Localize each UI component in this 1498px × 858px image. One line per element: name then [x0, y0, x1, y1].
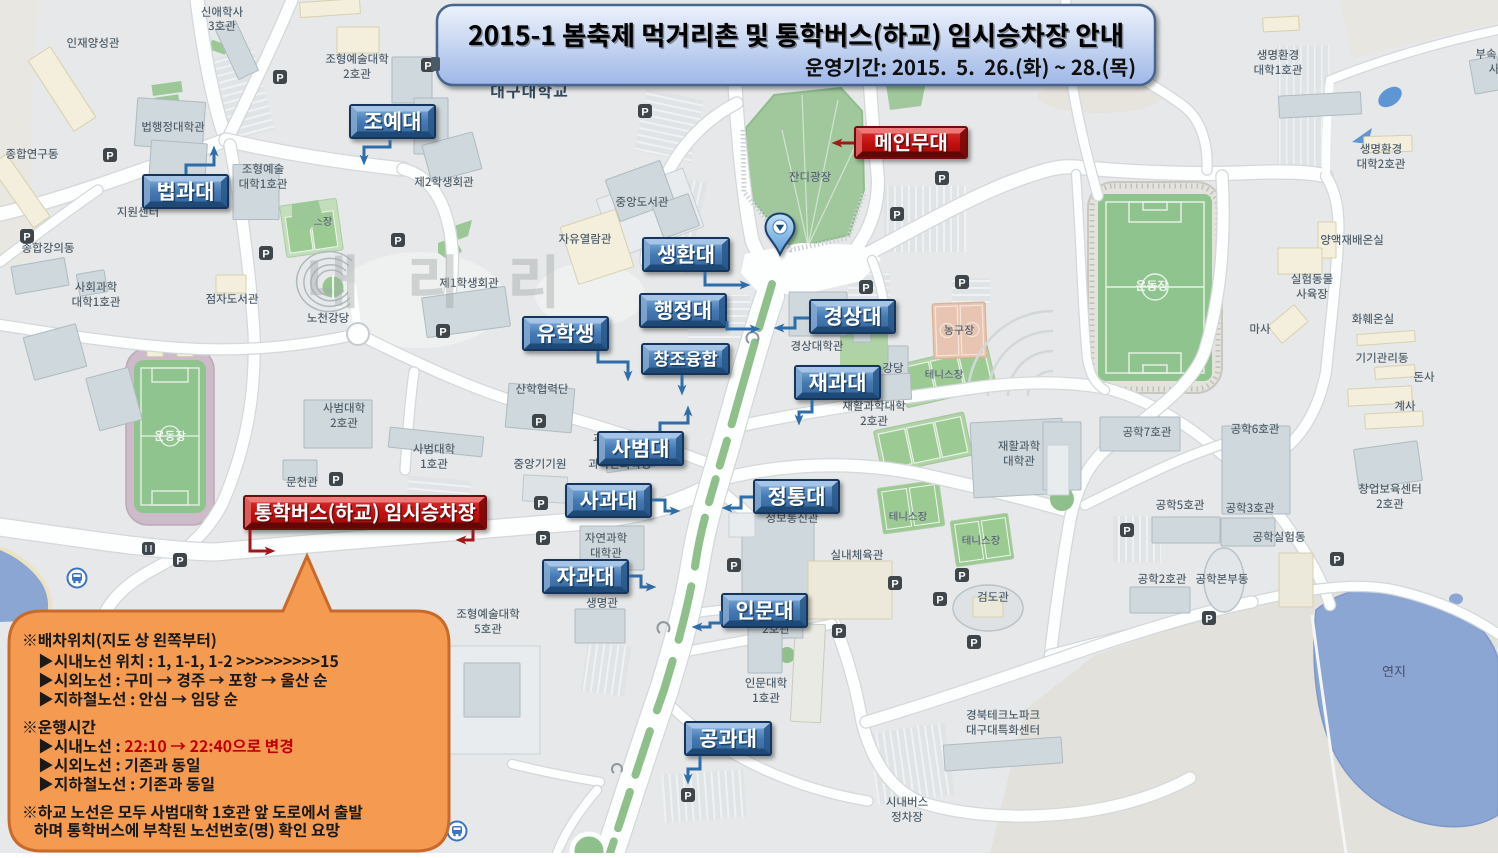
svg-text:P: P	[730, 560, 737, 572]
svg-text:P: P	[332, 474, 339, 486]
svg-text:P: P	[893, 209, 900, 221]
svg-text:P: P	[958, 277, 965, 289]
svg-text:P: P	[23, 231, 30, 243]
svg-text:P: P	[1123, 525, 1130, 537]
svg-text:P: P	[276, 72, 283, 84]
svg-text:P: P	[862, 282, 869, 294]
svg-text:P: P	[641, 106, 648, 118]
svg-text:P: P	[176, 555, 183, 567]
svg-text:P: P	[439, 326, 446, 338]
svg-text:P: P	[936, 594, 943, 606]
svg-text:P: P	[1205, 613, 1212, 625]
svg-text:P: P	[938, 173, 945, 185]
svg-text:P: P	[535, 416, 542, 428]
svg-text:P: P	[970, 637, 977, 649]
svg-text:P: P	[537, 498, 544, 510]
svg-text:P: P	[958, 570, 965, 582]
svg-text:P: P	[106, 150, 113, 162]
svg-text:P: P	[424, 60, 431, 72]
svg-text:P: P	[1333, 554, 1340, 566]
svg-text:P: P	[891, 578, 898, 590]
svg-text:P: P	[539, 533, 546, 545]
svg-text:P: P	[835, 626, 842, 638]
svg-text:P: P	[394, 235, 401, 247]
svg-text:P: P	[684, 790, 691, 802]
svg-text:P: P	[262, 248, 269, 260]
